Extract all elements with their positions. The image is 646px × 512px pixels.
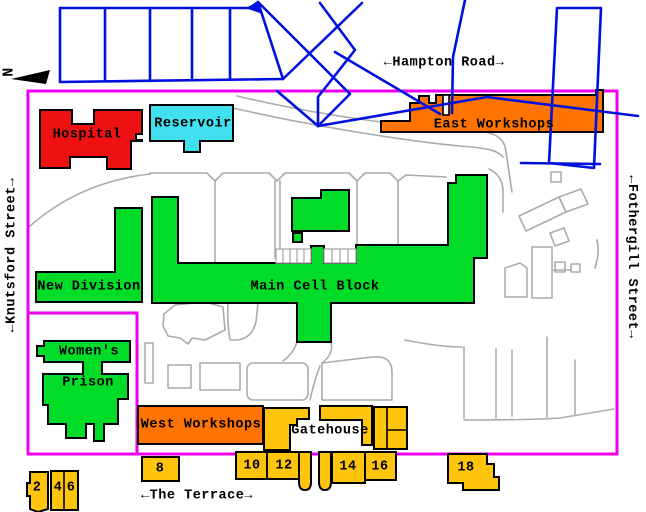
west-workshops-label: West Workshops <box>141 418 261 432</box>
path-line <box>595 240 598 268</box>
yard-outline <box>228 303 258 340</box>
terrace-number-18: 18 <box>457 461 474 475</box>
cell-block-annex <box>292 190 349 231</box>
gatehouse-tower <box>319 452 331 490</box>
street-label-the-terrace: ←The Terrace→ <box>141 489 253 503</box>
terrace-number-12: 12 <box>275 459 292 473</box>
womens-prison-label-line1: Women's <box>59 345 119 359</box>
outbuilding <box>551 172 561 182</box>
outbuilding <box>571 264 580 272</box>
road-edge <box>310 366 320 400</box>
road-edge <box>322 342 332 363</box>
reservoir-label: Reservoir <box>154 117 231 131</box>
outbuilding <box>519 197 566 231</box>
railway-lines <box>60 0 638 168</box>
outbuilding <box>200 363 240 390</box>
terrace-number-2: 2 <box>33 481 42 495</box>
terrace-number-10: 10 <box>243 459 260 473</box>
outbuilding <box>247 363 308 400</box>
terrace-number-14: 14 <box>339 460 356 474</box>
outbuilding <box>168 365 191 388</box>
gatehouse-label: Gatehouse <box>291 424 368 438</box>
cell-block-annex-small <box>293 233 302 242</box>
hospital-label: Hospital <box>53 128 122 142</box>
outbuilding <box>532 247 552 298</box>
street-label-fothergill-street: ←Fothergill Street→ <box>624 175 638 338</box>
street-label-hampton-road: ←Hampton Road→ <box>384 56 504 70</box>
prison-map: N ←Hampton Road→ ←Knutsford Street→ ←Fot… <box>0 0 646 512</box>
gatehouse-tower <box>299 452 311 490</box>
road-edge <box>464 409 614 420</box>
road-edge <box>283 342 297 361</box>
outbuilding <box>145 343 153 383</box>
outbuilding <box>505 263 527 297</box>
street-label-knutsford-street: ←Knutsford Street→ <box>5 178 19 333</box>
new-division-label: New Division <box>37 280 140 294</box>
terrace-number-6: 6 <box>67 481 76 495</box>
outbuilding <box>322 357 392 400</box>
outbuilding <box>550 228 569 246</box>
womens-prison-label-line2: Prison <box>62 376 114 390</box>
yard-outline <box>163 302 225 344</box>
road-edge <box>489 169 503 212</box>
north-label: N <box>2 67 17 77</box>
terrace-number-4: 4 <box>54 481 63 495</box>
east-workshops-label: East Workshops <box>434 118 554 132</box>
main-cell-block-label: Main Cell Block <box>250 280 379 294</box>
terrace-number-8: 8 <box>156 462 165 476</box>
road-edge <box>405 340 462 347</box>
yard-boundary <box>150 173 446 181</box>
outbuilding <box>559 189 588 212</box>
terrace-number-16: 16 <box>371 460 388 474</box>
